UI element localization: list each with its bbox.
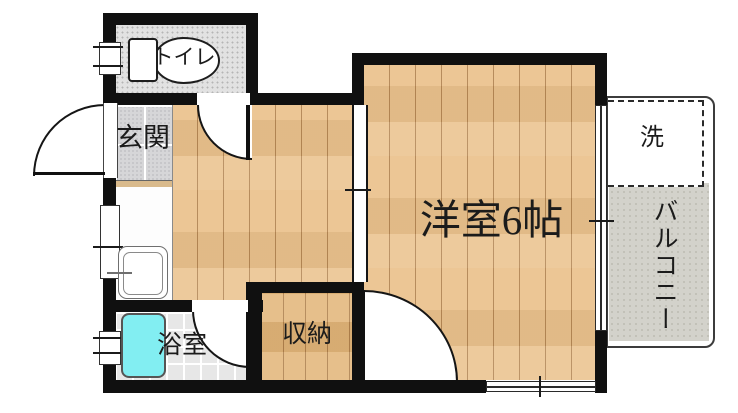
wall-hall-top	[250, 93, 364, 105]
entrance-door-leaf	[33, 172, 105, 175]
south-window-tick	[539, 376, 541, 397]
floor-plan: トイレ 玄関 洋室6帖 収納 浴室 洗 バルコニー	[0, 0, 738, 413]
wall-storage-left	[246, 282, 262, 392]
toilet-window-tick-2	[93, 65, 123, 67]
sink-icon	[118, 246, 168, 299]
bathroom-window-tick-2	[93, 352, 123, 354]
hallway-floor	[172, 105, 364, 302]
toilet-door-opening	[197, 93, 250, 105]
bathroom-door-opening	[192, 300, 248, 312]
wall-main-left-upper	[352, 53, 364, 105]
wall-top-toilet	[103, 13, 258, 25]
entrance-label: 玄関	[113, 124, 173, 152]
sliding-door-icon	[352, 105, 368, 282]
entrance-step	[115, 180, 172, 187]
bathroom-label: 浴室	[150, 333, 214, 359]
entrance-door-swing-icon	[33, 104, 105, 176]
wall-left-3	[103, 178, 116, 205]
storage-label: 収納	[262, 322, 352, 348]
wall-main-top	[352, 53, 607, 65]
wall-bottom	[103, 380, 486, 393]
toilet-label: トイレ	[152, 46, 216, 68]
south-window-icon	[486, 381, 596, 392]
kitchen-window-icon	[100, 205, 120, 279]
wall-toilet-right	[246, 13, 258, 105]
sliding-door-tick	[345, 189, 371, 191]
main-room-door-leaf	[361, 290, 365, 380]
toilet-door-leaf	[246, 105, 250, 160]
washer-label: 洗	[638, 126, 666, 151]
balcony-label: バルコニー	[644, 186, 676, 344]
wall-main-right-lower	[595, 331, 607, 393]
wall-main-right-upper	[595, 53, 607, 105]
toilet-window-tick-1	[93, 46, 123, 48]
wall-storage-top	[246, 282, 364, 293]
wall-left-1	[103, 13, 116, 42]
western-room-label: 洋室6帖	[384, 199, 599, 242]
bathroom-window-tick-1	[93, 337, 123, 339]
